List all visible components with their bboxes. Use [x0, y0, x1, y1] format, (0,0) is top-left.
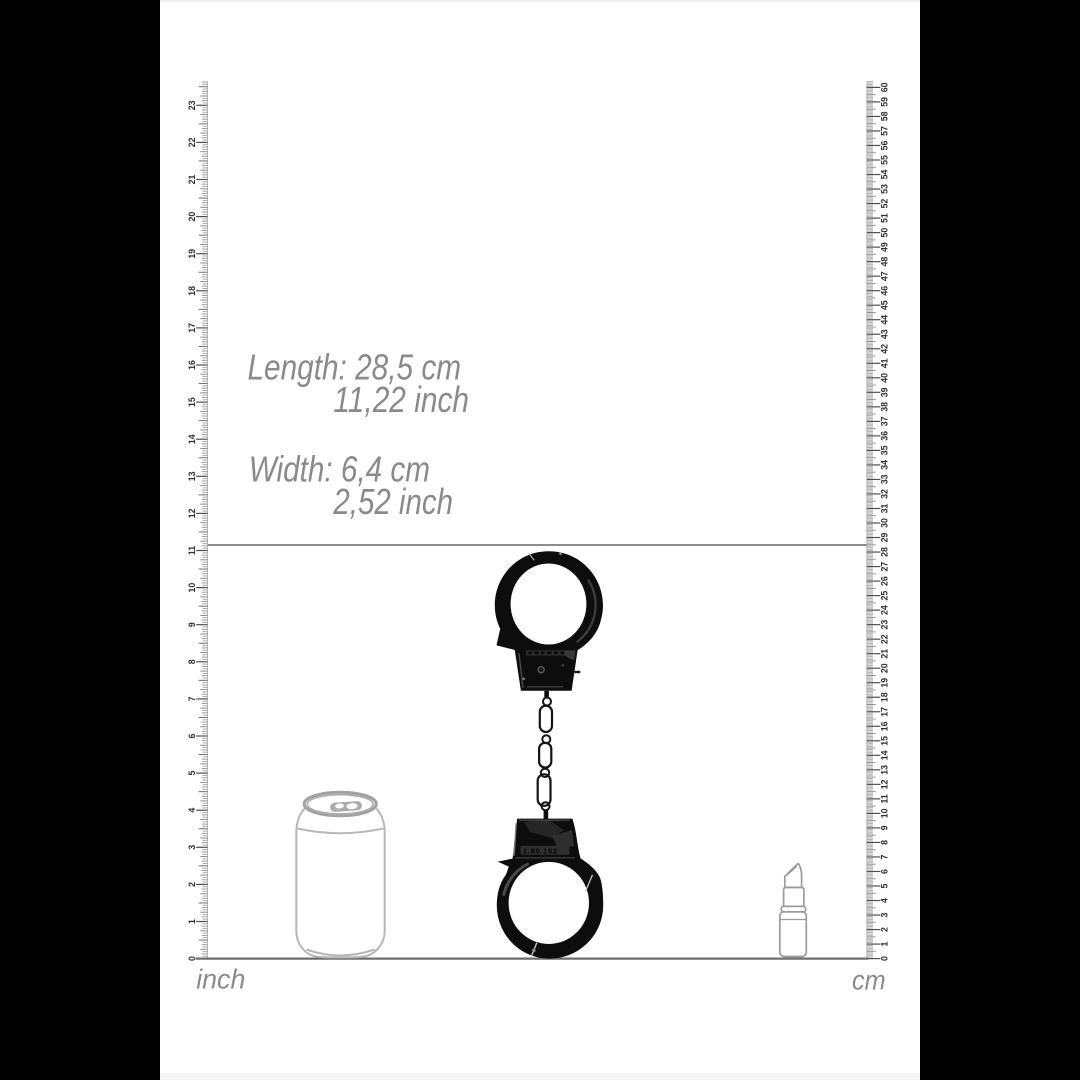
svg-text:20: 20 [879, 663, 889, 673]
svg-text:51: 51 [879, 213, 889, 223]
svg-text:1.80.162: 1.80.162 [523, 847, 558, 856]
svg-text:49: 49 [879, 242, 889, 252]
svg-text:54: 54 [879, 170, 889, 180]
svg-text:4: 4 [187, 808, 197, 813]
svg-text:30: 30 [879, 518, 889, 528]
svg-text:39: 39 [879, 387, 889, 397]
svg-text:52: 52 [879, 199, 889, 209]
svg-text:10: 10 [879, 808, 889, 818]
svg-text:23: 23 [879, 620, 889, 630]
svg-text:23: 23 [187, 100, 197, 110]
svg-text:9: 9 [187, 622, 197, 627]
svg-text:43: 43 [879, 329, 889, 339]
svg-text:11: 11 [187, 546, 197, 555]
svg-text:37: 37 [879, 416, 889, 426]
svg-text:6: 6 [187, 733, 197, 738]
svg-text:20: 20 [187, 212, 197, 222]
svg-text:22: 22 [879, 634, 889, 644]
svg-text:3: 3 [879, 912, 889, 917]
svg-text:18: 18 [879, 692, 889, 702]
svg-text:58: 58 [879, 111, 889, 121]
svg-text:7: 7 [187, 696, 197, 701]
svg-text:26: 26 [879, 576, 889, 586]
svg-text:5: 5 [187, 771, 197, 776]
svg-text:29: 29 [879, 533, 889, 543]
svg-text:17: 17 [879, 707, 889, 717]
svg-text:2: 2 [879, 927, 889, 932]
svg-text:1: 1 [879, 942, 889, 947]
svg-text:55: 55 [879, 155, 889, 165]
svg-text:0: 0 [879, 956, 889, 961]
svg-text:12: 12 [879, 779, 889, 789]
svg-text:18: 18 [187, 286, 197, 296]
svg-text:15: 15 [187, 397, 197, 407]
svg-text:19: 19 [187, 249, 197, 259]
svg-text:50: 50 [879, 228, 889, 238]
svg-text:32: 32 [879, 489, 889, 499]
svg-text:14: 14 [187, 434, 197, 444]
svg-text:19: 19 [879, 678, 889, 688]
svg-text:57: 57 [879, 126, 889, 136]
svg-text:24: 24 [879, 605, 889, 615]
svg-text:10: 10 [187, 583, 197, 593]
svg-text:cm: cm [852, 964, 886, 995]
svg-text:45: 45 [879, 300, 889, 310]
svg-text:8: 8 [187, 659, 197, 664]
svg-text:40: 40 [879, 373, 889, 383]
svg-text:2: 2 [187, 882, 197, 887]
svg-text:27: 27 [879, 562, 889, 572]
svg-text:31: 31 [879, 504, 889, 514]
svg-text:53: 53 [879, 184, 889, 194]
svg-text:28: 28 [879, 547, 889, 557]
svg-text:6: 6 [879, 869, 889, 874]
svg-text:46: 46 [879, 286, 889, 296]
svg-text:56: 56 [879, 141, 889, 151]
svg-text:1: 1 [187, 919, 197, 924]
svg-text:35: 35 [879, 445, 889, 455]
svg-text:13: 13 [187, 471, 197, 481]
svg-text:11: 11 [879, 794, 889, 803]
svg-text:17: 17 [187, 323, 197, 333]
svg-text:11,22 inch: 11,22 inch [333, 379, 469, 420]
svg-text:2,52 inch: 2,52 inch [333, 481, 453, 522]
svg-text:13: 13 [879, 765, 889, 775]
svg-text:0: 0 [187, 956, 197, 961]
svg-text:41: 41 [879, 358, 889, 368]
svg-text:14: 14 [879, 750, 889, 760]
svg-text:15: 15 [879, 736, 889, 746]
svg-text:34: 34 [879, 460, 889, 470]
svg-text:8: 8 [879, 840, 889, 845]
svg-text:22: 22 [187, 137, 197, 147]
svg-text:59: 59 [879, 97, 889, 107]
svg-text:5: 5 [879, 883, 889, 888]
svg-text:42: 42 [879, 344, 889, 354]
svg-text:21: 21 [187, 175, 197, 185]
svg-text:12: 12 [187, 508, 197, 518]
svg-text:4: 4 [879, 898, 889, 903]
svg-text:33: 33 [879, 474, 889, 484]
svg-text:25: 25 [879, 591, 889, 601]
svg-text:47: 47 [879, 271, 889, 281]
svg-text:9: 9 [879, 825, 889, 830]
svg-text:16: 16 [187, 360, 197, 370]
svg-text:21: 21 [879, 649, 889, 659]
svg-text:7: 7 [879, 854, 889, 859]
svg-text:3: 3 [187, 845, 197, 850]
svg-text:60: 60 [879, 82, 889, 92]
svg-text:inch: inch [196, 964, 245, 995]
svg-text:16: 16 [879, 721, 889, 731]
svg-text:36: 36 [879, 431, 889, 441]
svg-text:38: 38 [879, 402, 889, 412]
svg-text:44: 44 [879, 315, 889, 325]
svg-text:48: 48 [879, 257, 889, 267]
